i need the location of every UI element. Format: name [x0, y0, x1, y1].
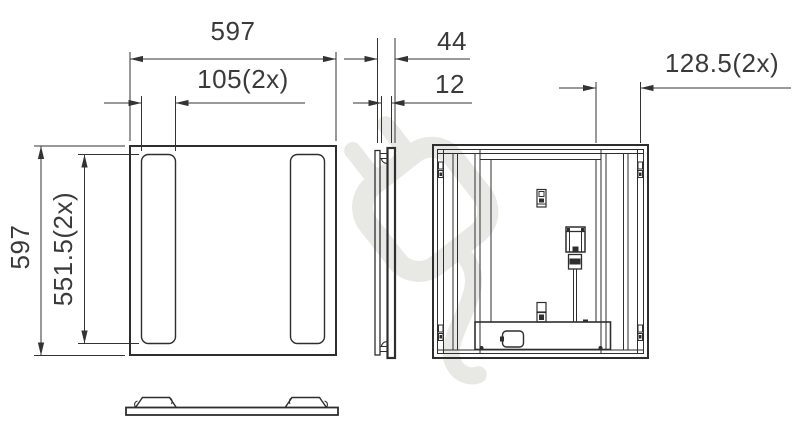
bottom-profile-view	[126, 398, 338, 416]
terminal-clip-bottom	[537, 303, 546, 323]
back-view-dimension-lines	[559, 82, 791, 143]
plug-watermark-icon	[312, 104, 569, 382]
front-view	[130, 146, 336, 355]
dim-mount-offset-label: 128.5(2x)	[665, 50, 779, 76]
dim-front-width-label: 597	[211, 18, 256, 44]
dim-front-height-label: 597	[7, 225, 33, 270]
dim-recess-depth-label: 12	[435, 71, 465, 97]
dim-slot-width-label: 105(2x)	[197, 66, 289, 92]
dim-depth-label: 44	[437, 28, 467, 54]
connector-plug	[566, 227, 585, 322]
dim-slot-height-label: 551.5(2x)	[50, 192, 76, 306]
technical-drawing-canvas: 597 105(2x) 597 551.5(2x) 44 12 128.5(2x…	[0, 0, 800, 446]
driver-box	[475, 320, 611, 351]
terminal-clip-top	[537, 190, 546, 208]
